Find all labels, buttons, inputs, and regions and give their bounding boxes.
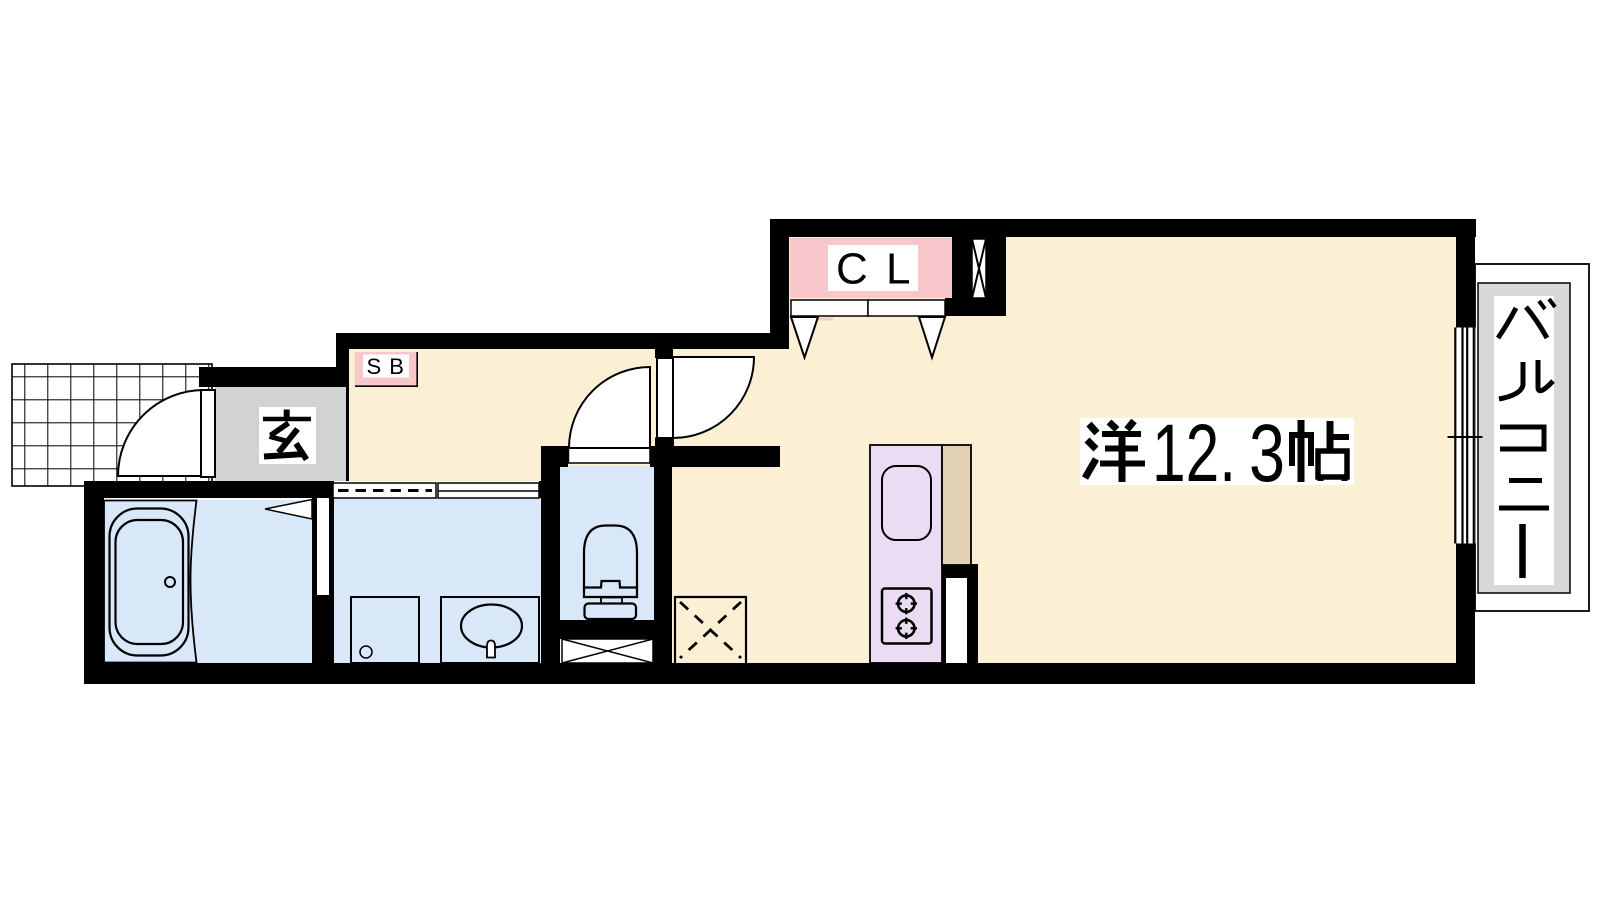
svg-text:12.: 12. bbox=[1152, 408, 1236, 499]
svg-text:C L: C L bbox=[836, 245, 913, 294]
svg-text:S B: S B bbox=[367, 354, 405, 379]
svg-text:3: 3 bbox=[1249, 408, 1285, 499]
